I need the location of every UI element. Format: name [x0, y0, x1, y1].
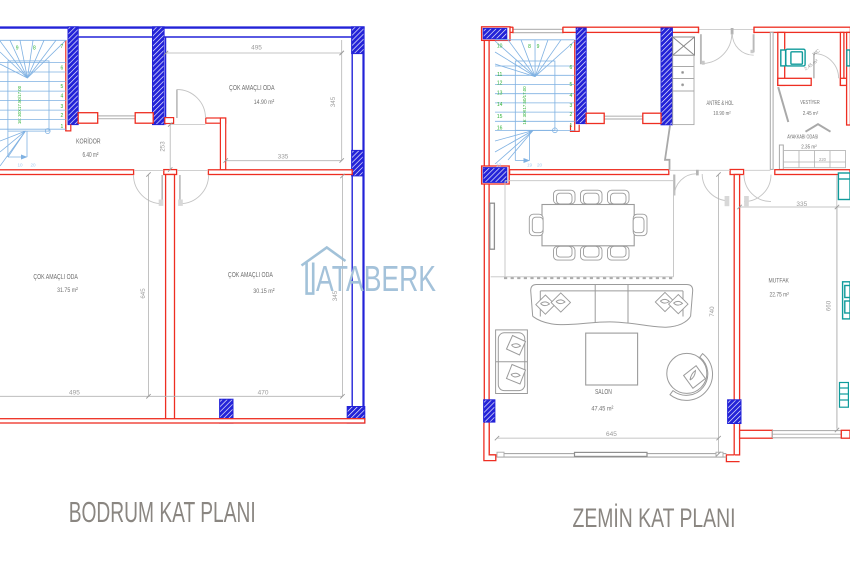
svg-text:660: 660 — [826, 300, 833, 311]
svg-text:6: 6 — [61, 66, 64, 72]
svg-text:19: 19 — [527, 163, 533, 168]
svg-text:16: 16 — [497, 126, 503, 132]
svg-text:BODRUM KAT PLANI: BODRUM KAT PLANI — [69, 497, 256, 529]
svg-text:KORİDOR: KORİDOR — [76, 136, 101, 145]
svg-text:1: 1 — [61, 124, 64, 130]
svg-text:10: 10 — [496, 163, 502, 168]
svg-text:740: 740 — [709, 306, 716, 317]
svg-text:345: 345 — [330, 96, 337, 107]
svg-text:16: 30X17.50/17.00: 16: 30X17.50/17.00 — [17, 85, 22, 124]
svg-text:14.90 m²: 14.90 m² — [254, 99, 275, 106]
svg-text:ANTRE & HOL: ANTRE & HOL — [707, 100, 734, 107]
svg-text:15: 15 — [497, 114, 503, 120]
svg-text:16: 30X17.50/17.00: 16: 30X17.50/17.00 — [522, 86, 527, 125]
svg-text:2.35 m²: 2.35 m² — [801, 145, 817, 151]
svg-text:10: 10 — [497, 44, 503, 50]
svg-text:9: 9 — [16, 46, 19, 52]
svg-text:1: 1 — [570, 123, 573, 129]
svg-text:31.75 m²: 31.75 m² — [57, 287, 78, 294]
svg-text:ÇOK AMAÇLI ODA: ÇOK AMAÇLI ODA — [228, 270, 273, 279]
svg-text:645: 645 — [140, 288, 147, 299]
svg-text:9: 9 — [537, 44, 540, 50]
svg-text:ÇOK AMAÇLI ODA: ÇOK AMAÇLI ODA — [33, 272, 78, 281]
svg-text:ÇOK AMAÇLI ODA: ÇOK AMAÇLI ODA — [229, 83, 275, 92]
svg-text:4: 4 — [61, 93, 64, 99]
svg-text:VESTİYER: VESTİYER — [800, 99, 820, 106]
svg-text:13: 13 — [497, 91, 503, 97]
svg-text:6: 6 — [570, 65, 573, 71]
svg-text:335: 335 — [796, 201, 807, 208]
svg-text:645: 645 — [606, 431, 617, 438]
svg-text:335: 335 — [278, 153, 289, 160]
svg-text:20: 20 — [537, 163, 543, 168]
svg-text:220: 220 — [819, 157, 827, 162]
svg-text:495: 495 — [251, 44, 262, 51]
svg-text:4: 4 — [570, 93, 573, 99]
svg-text:8: 8 — [528, 44, 531, 50]
svg-text:2: 2 — [61, 113, 64, 119]
svg-text:6.40 m²: 6.40 m² — [83, 152, 99, 159]
svg-text:253: 253 — [160, 141, 167, 152]
svg-text:ATABERK: ATABERK — [316, 258, 436, 299]
svg-text:5: 5 — [570, 82, 573, 88]
svg-text:10.90 m²: 10.90 m² — [713, 111, 731, 117]
svg-text:2.45 m²: 2.45 m² — [803, 111, 819, 117]
svg-text:495: 495 — [69, 390, 80, 397]
svg-text:47.45 m²: 47.45 m² — [591, 406, 614, 413]
svg-text:AYAKKABI ODASI: AYAKKABI ODASI — [787, 135, 818, 141]
svg-text:5: 5 — [61, 84, 64, 90]
svg-text:20: 20 — [30, 163, 36, 168]
svg-text:470: 470 — [258, 389, 269, 396]
svg-text:2: 2 — [570, 112, 573, 118]
svg-text:MUTFAK: MUTFAK — [768, 277, 789, 284]
svg-text:12: 12 — [497, 80, 503, 86]
svg-text:14: 14 — [497, 102, 503, 108]
svg-text:10: 10 — [17, 163, 23, 168]
svg-text:7: 7 — [61, 44, 64, 50]
svg-text:22.75 m²: 22.75 m² — [770, 291, 789, 298]
svg-text:SALON: SALON — [595, 387, 612, 396]
svg-text:3: 3 — [570, 103, 573, 109]
svg-text:11: 11 — [497, 72, 502, 78]
svg-text:3: 3 — [61, 104, 64, 110]
svg-text:7: 7 — [570, 44, 573, 50]
svg-text:30.15 m²: 30.15 m² — [253, 288, 275, 295]
svg-text:8: 8 — [33, 46, 36, 52]
svg-text:ZEMİN KAT PLANI: ZEMİN KAT PLANI — [573, 503, 736, 533]
